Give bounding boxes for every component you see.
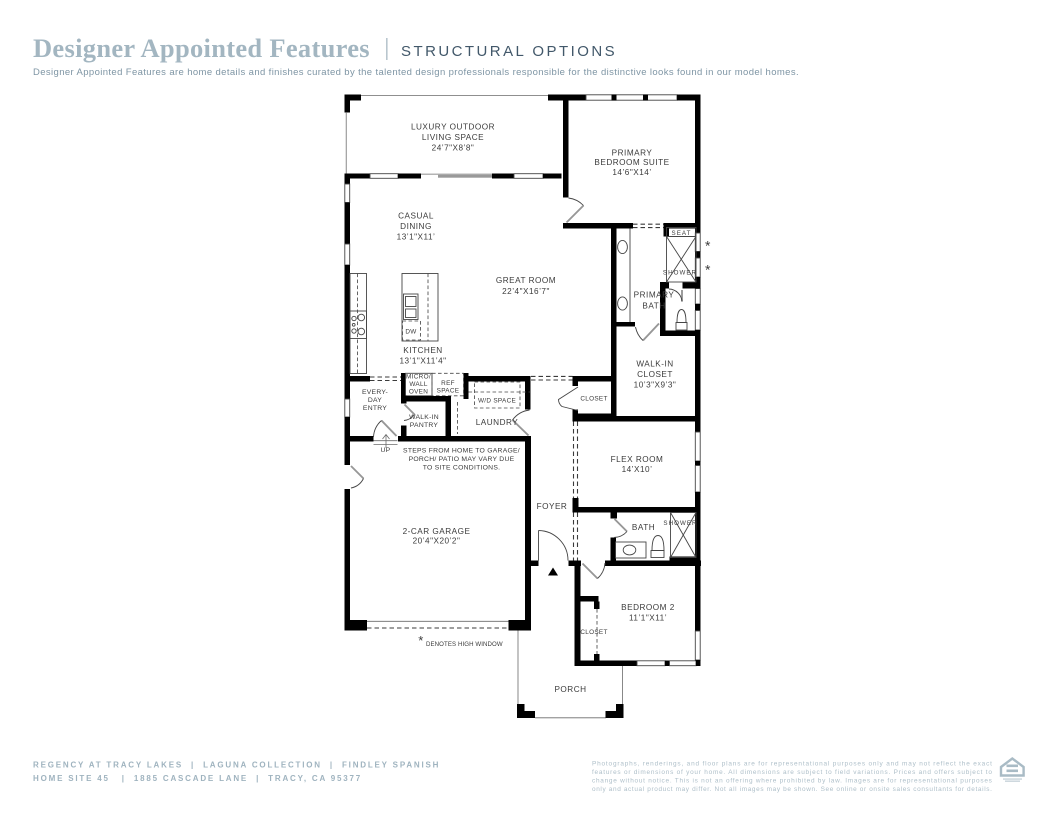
svg-text:BEDROOM SUITE: BEDROOM SUITE — [594, 158, 669, 167]
svg-text:PORCH/ PATIO MAY VARY DUE: PORCH/ PATIO MAY VARY DUE — [409, 456, 515, 463]
svg-text:CLOSET: CLOSET — [580, 629, 607, 636]
svg-text:SHOWER: SHOWER — [663, 520, 697, 527]
svg-text:EVERY-: EVERY- — [362, 389, 388, 396]
svg-text:24’7"X8’8": 24’7"X8’8" — [432, 144, 475, 153]
svg-text:13’1"X11’4": 13’1"X11’4" — [399, 357, 446, 366]
svg-text:*: * — [705, 238, 711, 254]
svg-text:22’4"X16’7": 22’4"X16’7" — [502, 287, 550, 296]
svg-text:REF: REF — [441, 380, 455, 387]
svg-text:PANTRY: PANTRY — [410, 422, 439, 429]
svg-text:WALK-IN: WALK-IN — [409, 414, 439, 421]
svg-text:SEAT: SEAT — [672, 230, 692, 237]
svg-text:10’3"X9’3": 10’3"X9’3" — [634, 381, 677, 390]
svg-text:STEPS FROM HOME TO GARAGE/: STEPS FROM HOME TO GARAGE/ — [403, 448, 520, 455]
svg-text:BATH: BATH — [642, 302, 665, 311]
svg-text:13’1"X11’: 13’1"X11’ — [397, 233, 436, 242]
svg-text:LAUNDRY: LAUNDRY — [476, 418, 519, 427]
svg-text:UP: UP — [381, 447, 391, 454]
svg-text:KITCHEN: KITCHEN — [403, 346, 442, 355]
svg-text:SPACE: SPACE — [437, 388, 460, 395]
svg-text:features or dimensions of your: features or dimensions of your home. All… — [592, 769, 992, 776]
svg-text:GREAT ROOM: GREAT ROOM — [496, 276, 556, 285]
svg-text:*: * — [418, 633, 424, 648]
svg-text:HOME SITE 45 | 1885 CASCADE: HOME SITE 45 | 1885 CASCADE LANE | TRACY… — [33, 774, 362, 783]
svg-text:STRUCTURAL OPTIONS: STRUCTURAL OPTIONS — [401, 43, 617, 60]
svg-text:11’1"X11’: 11’1"X11’ — [629, 614, 667, 623]
svg-text:CASUAL: CASUAL — [398, 212, 434, 221]
svg-text:change without notice. This is: change without notice. This is not an of… — [592, 778, 992, 785]
svg-text:WALL: WALL — [409, 381, 428, 388]
svg-text:14’X10’: 14’X10’ — [622, 465, 653, 474]
svg-text:20’4"X20’2": 20’4"X20’2" — [413, 537, 461, 546]
svg-text:ENTRY: ENTRY — [363, 405, 387, 412]
svg-text:Designer Appointed Features ar: Designer Appointed Features are home det… — [33, 67, 799, 78]
svg-text:WALK-IN: WALK-IN — [636, 360, 673, 369]
svg-text:BEDROOM 2: BEDROOM 2 — [621, 603, 675, 612]
svg-text:LUXURY OUTDOOR: LUXURY OUTDOOR — [411, 123, 495, 132]
svg-text:CLOSET: CLOSET — [637, 370, 673, 379]
svg-text:W/D SPACE: W/D SPACE — [478, 398, 516, 405]
svg-text:2-CAR GARAGE: 2-CAR GARAGE — [403, 527, 471, 536]
svg-text:*: * — [705, 262, 711, 278]
svg-text:Designer Appointed Features: Designer Appointed Features — [33, 33, 370, 63]
svg-text:MICRO/: MICRO/ — [406, 374, 431, 381]
svg-text:LIVING SPACE: LIVING SPACE — [422, 133, 484, 142]
svg-text:PORCH: PORCH — [554, 685, 586, 694]
svg-text:FLEX ROOM: FLEX ROOM — [611, 455, 664, 464]
svg-text:DENOTES HIGH WINDOW: DENOTES HIGH WINDOW — [426, 641, 503, 648]
svg-text:REGENCY AT TRACY LAKES | LAG: REGENCY AT TRACY LAKES | LAGUNA COLLECTI… — [33, 761, 440, 770]
svg-text:CLOSET: CLOSET — [580, 396, 607, 403]
svg-text:only and actual product may di: only and actual product may differ. Not … — [592, 786, 992, 793]
svg-text:OVEN: OVEN — [409, 389, 428, 396]
svg-text:PRIMARY: PRIMARY — [612, 149, 653, 158]
svg-text:Photographs, renderings, and f: Photographs, renderings, and floor plans… — [592, 761, 992, 768]
svg-text:14’6"X14’: 14’6"X14’ — [612, 168, 651, 177]
svg-text:FOYER: FOYER — [537, 502, 568, 511]
svg-text:BATH: BATH — [632, 523, 655, 532]
svg-text:DW: DW — [405, 329, 417, 336]
svg-text:DINING: DINING — [400, 222, 432, 231]
svg-text:PRIMARY: PRIMARY — [634, 291, 675, 300]
svg-text:DAY: DAY — [368, 397, 382, 404]
svg-text:SHOWER: SHOWER — [663, 270, 697, 277]
svg-text:TO SITE CONDITIONS.: TO SITE CONDITIONS. — [423, 465, 501, 472]
